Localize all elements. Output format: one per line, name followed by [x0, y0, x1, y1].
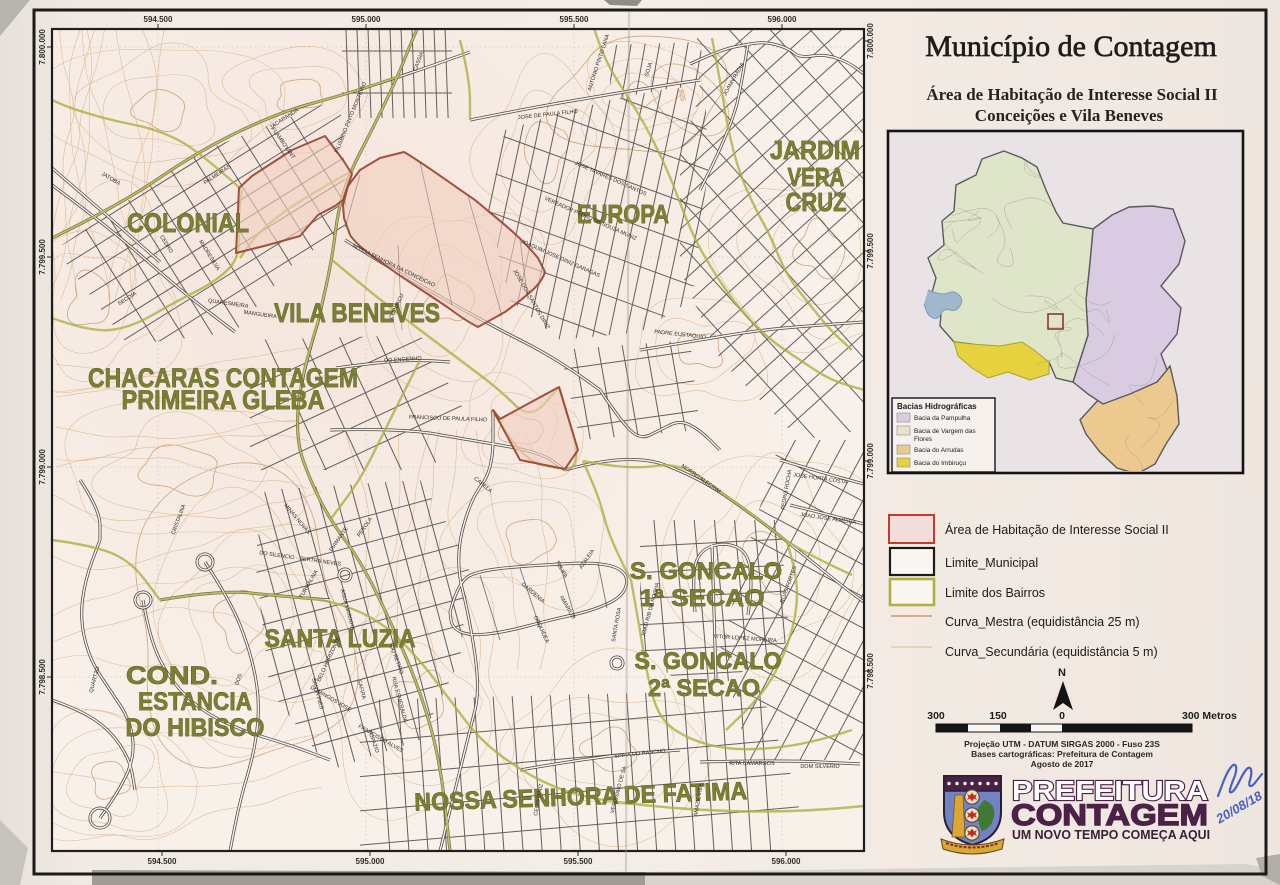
svg-text:Limite dos Bairros: Limite dos Bairros	[945, 586, 1045, 600]
svg-text:0: 0	[1059, 710, 1065, 722]
svg-text:Bacia da Pampulha: Bacia da Pampulha	[914, 415, 971, 422]
svg-text:Área de Habitação de Interesse: Área de Habitação de Interesse Social II	[926, 85, 1218, 104]
svg-text:Bacia do Arrudas: Bacia do Arrudas	[914, 447, 964, 454]
svg-text:JARDIM: JARDIM	[770, 135, 860, 165]
svg-text:DO HIBISCO: DO HIBISCO	[126, 714, 265, 742]
svg-text:Projeção UTM - DATUM SIRGAS 20: Projeção UTM - DATUM SIRGAS 2000 - Fuso …	[964, 739, 1160, 749]
svg-text:594.500: 594.500	[144, 15, 173, 24]
svg-text:7.799.000: 7.799.000	[866, 443, 875, 479]
svg-text:595.000: 595.000	[356, 857, 385, 866]
svg-text:7.798.500: 7.798.500	[38, 659, 47, 695]
svg-text:Bacias Hidrográficas: Bacias Hidrográficas	[897, 402, 977, 411]
svg-text:Conceições e Vila Beneves: Conceições e Vila Beneves	[975, 106, 1164, 125]
svg-text:594.500: 594.500	[148, 857, 177, 866]
svg-text:EUROPA: EUROPA	[577, 199, 669, 229]
svg-text:Curva_Mestra (equidistância 25: Curva_Mestra (equidistância 25 m)	[945, 615, 1140, 629]
svg-text:595.500: 595.500	[564, 857, 593, 866]
svg-text:Agosto de 2017: Agosto de 2017	[1031, 759, 1094, 769]
svg-text:596.000: 596.000	[768, 15, 797, 24]
svg-text:UM NOVO TEMPO COMEÇA AQUI: UM NOVO TEMPO COMEÇA AQUI	[1012, 827, 1210, 842]
svg-text:7.799.500: 7.799.500	[866, 233, 875, 269]
svg-text:DOM SILVERIO: DOM SILVERIO	[800, 764, 840, 770]
svg-text:S. GONCALO: S. GONCALO	[630, 558, 782, 585]
svg-text:Área de Habitação de Interesse: Área de Habitação de Interesse Social II	[945, 522, 1169, 537]
svg-text:Bacia do Imbiruçu: Bacia do Imbiruçu	[914, 460, 966, 467]
svg-text:150: 150	[989, 710, 1007, 722]
svg-text:595.500: 595.500	[560, 15, 589, 24]
svg-text:595.000: 595.000	[352, 15, 381, 24]
svg-text:COND.: COND.	[126, 662, 218, 690]
svg-text:7.798.500: 7.798.500	[866, 653, 875, 689]
svg-text:ESTANCIA: ESTANCIA	[138, 688, 252, 716]
svg-text:Flores: Flores	[914, 436, 933, 443]
svg-text:CRUZ: CRUZ	[786, 187, 847, 217]
svg-text:596.000: 596.000	[772, 857, 801, 866]
svg-text:2ª SECAO: 2ª SECAO	[648, 675, 760, 702]
svg-text:VILA BENEVES: VILA BENEVES	[274, 298, 440, 328]
svg-text:S. GONCALO: S. GONCALO	[635, 648, 782, 675]
svg-text:300: 300	[927, 710, 945, 722]
svg-text:Bacia de Vargem das: Bacia de Vargem das	[914, 428, 976, 435]
svg-text:Curva_Secundária (equidistânci: Curva_Secundária (equidistância 5 m)	[945, 645, 1158, 659]
svg-text:7.799.000: 7.799.000	[38, 449, 47, 485]
svg-text:Bases cartográficas: Prefeitur: Bases cartográficas: Prefeitura de Conta…	[971, 749, 1153, 759]
svg-text:7.799.500: 7.799.500	[38, 239, 47, 275]
svg-text:Município de Contagem: Município de Contagem	[925, 30, 1217, 63]
svg-text:300 Metros: 300 Metros	[1182, 710, 1237, 722]
svg-text:7.800.000: 7.800.000	[866, 23, 875, 59]
svg-text:N: N	[1058, 667, 1066, 679]
svg-text:COLONIAL: COLONIAL	[127, 208, 249, 238]
svg-text:PRIMEIRA GLEBA: PRIMEIRA GLEBA	[122, 385, 325, 415]
svg-text:Limite_Municipal: Limite_Municipal	[945, 556, 1038, 570]
svg-text:7.800.000: 7.800.000	[38, 29, 47, 65]
svg-text:RITA CAMARGOS: RITA CAMARGOS	[729, 761, 775, 767]
